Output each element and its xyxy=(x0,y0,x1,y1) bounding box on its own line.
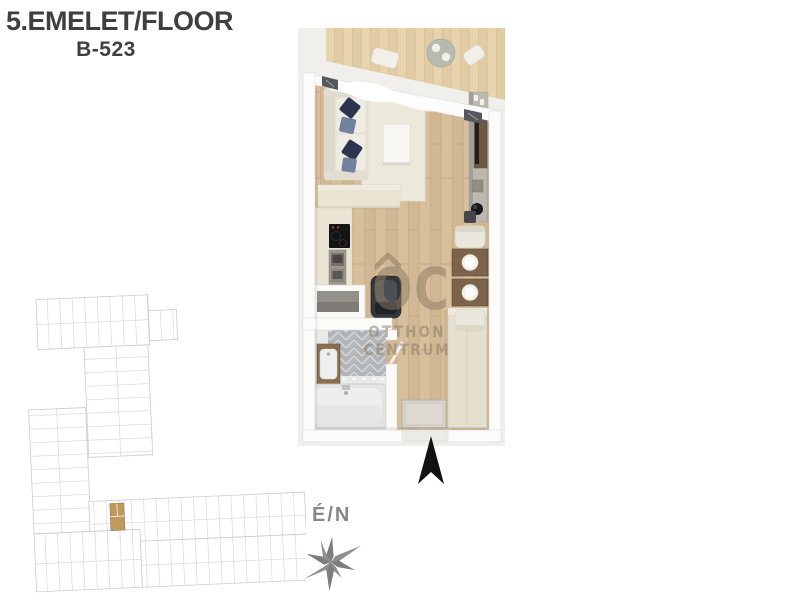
appliance-window xyxy=(333,271,343,279)
apartment-plan-svg: OC OTTHON CENTRUM xyxy=(298,28,505,446)
tv-screen xyxy=(475,118,479,164)
plate-center xyxy=(465,287,475,297)
pillow-slate xyxy=(341,157,357,173)
media-box xyxy=(472,180,483,192)
compass-block: É/N xyxy=(296,504,386,595)
balcony-cup xyxy=(432,44,440,52)
dining-chair-back xyxy=(455,226,485,232)
tub-drain xyxy=(344,391,348,395)
sofa xyxy=(324,88,368,180)
cooktop-indicator xyxy=(332,226,334,228)
balcony-table xyxy=(427,39,455,67)
watermark-line2: CENTRUM xyxy=(364,341,451,359)
wall-bathroom-right xyxy=(386,364,397,430)
kitchen-counter-edge xyxy=(318,185,400,190)
niche-opening-shadow xyxy=(317,302,359,312)
watermark-monogram: OC xyxy=(372,255,451,323)
north-label: É/N xyxy=(296,504,386,527)
building-site-plan xyxy=(28,288,306,594)
basin-faucet xyxy=(327,352,330,355)
niche-cabinet xyxy=(312,285,365,318)
balcony-cup xyxy=(442,53,450,61)
highlighted-unit xyxy=(110,503,125,531)
vanity xyxy=(317,344,340,386)
entry-hall xyxy=(402,400,446,428)
title-block: 5.EMELET/FLOOR B-523 xyxy=(6,6,221,62)
floor-title: 5.EMELET/FLOOR xyxy=(6,6,221,37)
tub-shading xyxy=(309,405,382,424)
apartment-floor-plan: OC OTTHON CENTRUM xyxy=(298,28,505,446)
oven-window xyxy=(333,255,343,263)
coffee-table xyxy=(383,124,410,164)
compass-rose xyxy=(296,529,386,595)
unit-number: B-523 xyxy=(6,38,206,62)
plant-pot-highlight xyxy=(473,205,478,210)
watermark-logo: OC OTTHON CENTRUM xyxy=(364,252,451,359)
watermark-line1: OTTHON xyxy=(368,323,445,341)
direction-arrow xyxy=(414,436,448,486)
unit-divisions xyxy=(28,288,306,592)
pillow-slate xyxy=(339,117,357,135)
speaker-box xyxy=(464,211,476,223)
coffee-table-shadow xyxy=(383,162,410,165)
site-plan-svg xyxy=(28,288,306,594)
plate-center xyxy=(465,257,475,267)
decor-candle xyxy=(480,99,484,105)
wall-right xyxy=(489,111,501,442)
floor-plan-page: 5.EMELET/FLOOR B-523 xyxy=(0,0,800,600)
tub-faucet xyxy=(342,385,350,390)
doormat-inner xyxy=(405,403,443,425)
direction-arrow-icon xyxy=(414,436,448,486)
site-plan-building xyxy=(28,288,306,592)
compass-rose-icon xyxy=(296,529,366,595)
cooktop-indicator xyxy=(337,226,339,228)
dining-chair-back xyxy=(455,325,485,331)
decor-candle xyxy=(474,95,478,101)
